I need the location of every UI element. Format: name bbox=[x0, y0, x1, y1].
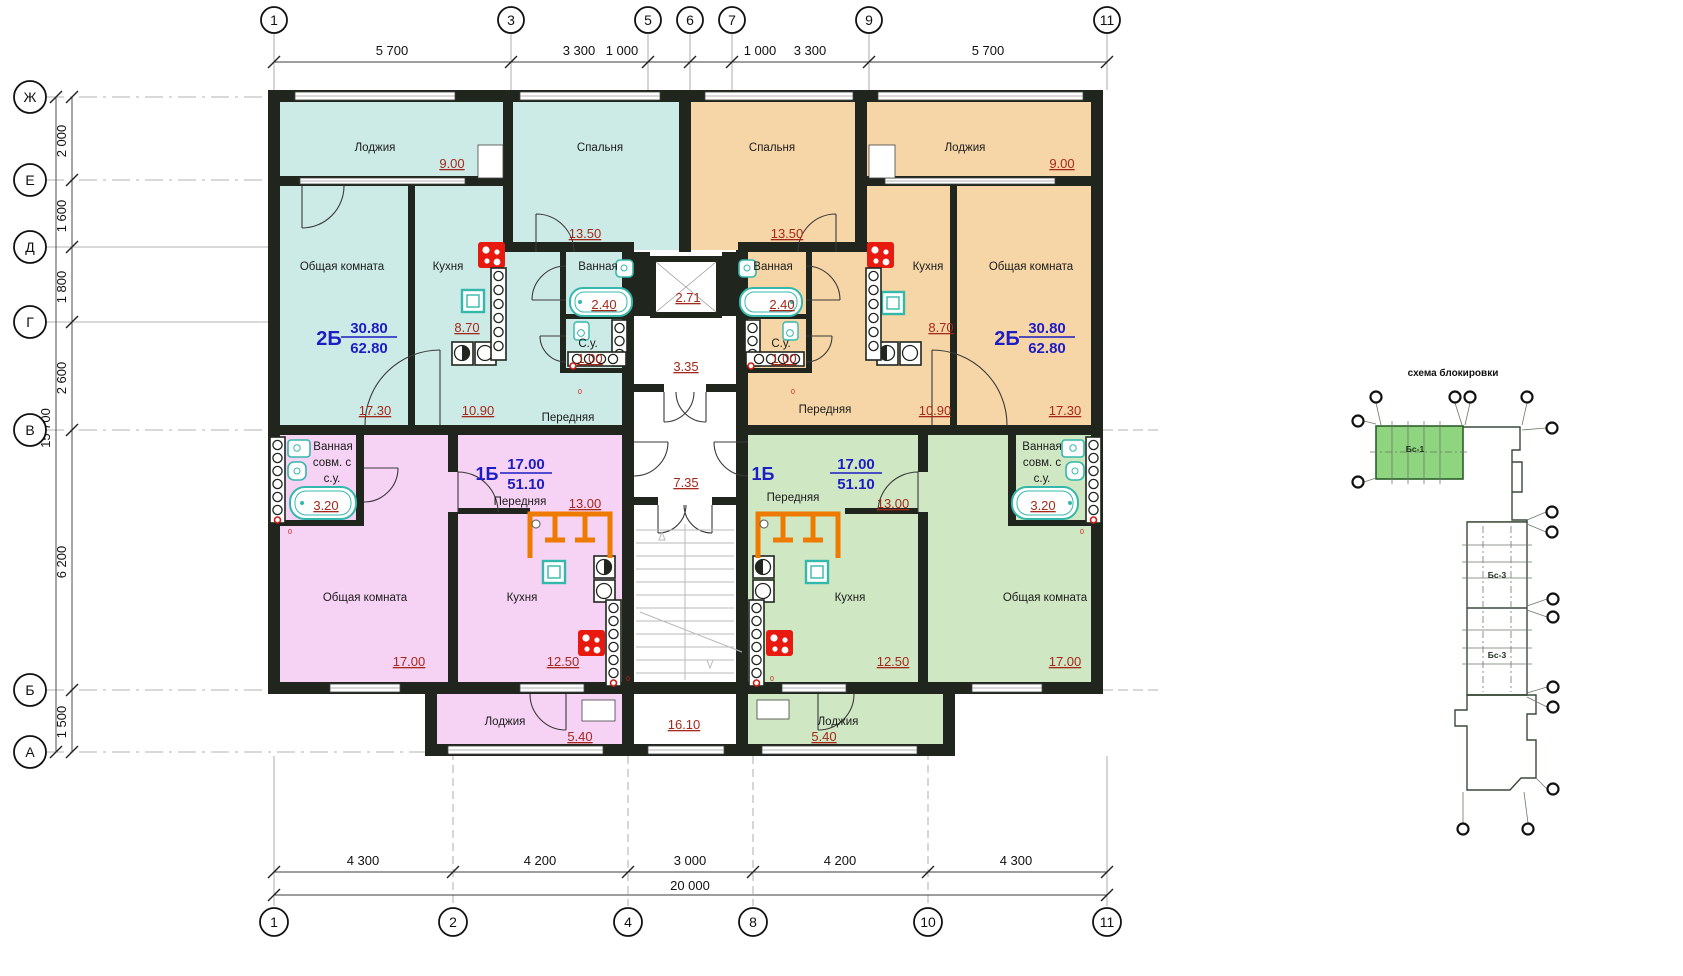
stove-icon bbox=[766, 630, 793, 656]
washbasin-icon bbox=[616, 260, 633, 277]
flat-total-area: 51.10 bbox=[507, 476, 545, 493]
room-area-kitchen: 8.70 bbox=[928, 320, 953, 335]
sink-icon bbox=[806, 561, 828, 583]
room-area-wc: 1.00 bbox=[577, 351, 602, 366]
room-area-hall: 10.90 bbox=[919, 403, 952, 418]
room-area-kitchen: 12.50 bbox=[547, 654, 580, 669]
axis-label: 6 bbox=[686, 12, 694, 28]
room-label-kitchen: Кухня bbox=[433, 261, 464, 273]
room-area-living: 17.00 bbox=[1049, 654, 1082, 669]
dim-bottom-3: 4 200 bbox=[824, 853, 857, 868]
room-area-living: 17.30 bbox=[1049, 403, 1082, 418]
radiator-icon bbox=[749, 600, 764, 686]
room-label-bedroom: Спальня bbox=[577, 142, 623, 154]
axis-label: Е bbox=[25, 172, 34, 188]
room-label-loggia: Лоджия bbox=[818, 716, 859, 728]
zero-mark: 0 bbox=[1080, 529, 1084, 536]
room-label-living: Общая комната bbox=[323, 592, 408, 604]
flat-total-area: 62.80 bbox=[350, 340, 388, 357]
dim-top-5: 5 700 bbox=[972, 43, 1005, 58]
sink-icon bbox=[882, 292, 904, 314]
room-area-wc: 1.00 bbox=[771, 351, 796, 366]
room-label-hall: Передняя bbox=[767, 492, 820, 504]
flat-living-area: 17.00 bbox=[507, 456, 545, 473]
axis-label: Ж bbox=[24, 89, 37, 105]
radiator-icon bbox=[491, 268, 506, 360]
axis-circles-left: Ж Е Д Г В Б А bbox=[14, 81, 46, 768]
room-area-bath: 3.20 bbox=[313, 498, 338, 513]
dim-bottom-2: 3 000 bbox=[674, 853, 707, 868]
dim-top-2: 1 000 bbox=[606, 43, 639, 58]
room-label-hall: Передняя bbox=[494, 496, 547, 508]
zero-mark: 0 bbox=[791, 389, 795, 396]
scheme-block-3a-label: Бс-3 bbox=[1488, 570, 1507, 580]
flat-total-area: 62.80 bbox=[1028, 340, 1066, 357]
room-label-kitchen: Кухня bbox=[913, 261, 944, 273]
axis-label: А bbox=[25, 744, 35, 760]
room-area-kitchen: 12.50 bbox=[877, 654, 910, 669]
axis-label: 11 bbox=[1100, 12, 1115, 28]
axis-label: 2 bbox=[449, 914, 457, 930]
elevator-area: 2.71 bbox=[675, 290, 700, 305]
washbasin-icon bbox=[1066, 462, 1084, 480]
washbasin-icon bbox=[288, 462, 306, 480]
staircase bbox=[636, 524, 742, 680]
stove-icon bbox=[578, 630, 605, 656]
room-area-bath: 3.20 bbox=[1030, 498, 1055, 513]
room-label-hall: Передняя bbox=[542, 412, 595, 424]
room-label-living: Общая комната bbox=[1003, 592, 1088, 604]
toilet-icon bbox=[288, 440, 310, 457]
window-band-top-2 bbox=[520, 92, 660, 100]
dim-top-3: 1 000 bbox=[744, 43, 777, 58]
radiator-icon bbox=[1086, 437, 1101, 523]
axis-label: Г bbox=[26, 314, 34, 330]
room-label-hall: Передняя bbox=[799, 404, 852, 416]
zero-mark: 0 bbox=[578, 389, 582, 396]
room-area-loggia: 5.40 bbox=[567, 729, 592, 744]
window-loggia-bottom-1 bbox=[448, 746, 603, 754]
blocking-scheme: схема блокировки Бс-1 Бс-3 Бс-3 bbox=[1353, 367, 1559, 835]
window-band-top-4 bbox=[878, 92, 1083, 100]
room-label-loggia: Лоджия bbox=[485, 716, 526, 728]
dim-total-width: 20 000 bbox=[670, 878, 710, 893]
room-label-kitchen: Кухня bbox=[507, 592, 538, 604]
flat-living-area: 30.80 bbox=[350, 320, 388, 337]
room-area-loggia: 9.00 bbox=[439, 156, 464, 171]
room-label-bath-1: Ванная bbox=[313, 441, 352, 453]
room-label-bath: Ванная bbox=[753, 261, 792, 273]
scheme-block-3b-label: Бс-3 bbox=[1488, 650, 1507, 660]
dim-left-3: 2 600 bbox=[54, 362, 69, 395]
axis-label: 1 bbox=[270, 914, 278, 930]
hall-area: 7.35 bbox=[673, 475, 698, 490]
axis-label: Д bbox=[25, 239, 35, 255]
axis-label: 4 bbox=[624, 914, 632, 930]
radiator-icon bbox=[866, 268, 881, 360]
room-label-loggia: Лоджия bbox=[945, 142, 986, 154]
zero-mark: 0 bbox=[626, 676, 630, 683]
room-label-wc: С.у. bbox=[771, 338, 790, 350]
flat-type: 1Б bbox=[752, 464, 775, 484]
flat-living-area: 17.00 bbox=[837, 456, 875, 473]
axis-label: 8 bbox=[749, 914, 757, 930]
room-area-loggia: 5.40 bbox=[811, 729, 836, 744]
axis-circles-top: 1 3 5 6 7 9 11 bbox=[261, 7, 1120, 33]
stove-icon bbox=[867, 242, 894, 268]
flat-type: 2Б bbox=[316, 328, 342, 350]
window-loggia-bottom-2 bbox=[762, 746, 917, 754]
dim-left-0: 2 000 bbox=[54, 125, 69, 158]
axis-label: 5 bbox=[644, 12, 652, 28]
room-label-bedroom: Спальня bbox=[749, 142, 795, 154]
room-area-kitchen: 8.70 bbox=[454, 320, 479, 335]
dim-bottom-0: 4 300 bbox=[347, 853, 380, 868]
room-area-living: 17.00 bbox=[393, 654, 426, 669]
room-area-hall: 13.00 bbox=[877, 496, 910, 511]
stair-area: 16.10 bbox=[668, 717, 701, 732]
floor-plan-page: Лоджия 9.00 Спальня 13.50 Общая комната … bbox=[0, 0, 1683, 976]
radiator-icon bbox=[606, 600, 621, 686]
room-label-bath-3: с.у. bbox=[324, 473, 341, 485]
flat-type: 2Б bbox=[994, 328, 1020, 350]
axis-label: Б bbox=[25, 682, 34, 698]
loggia-pier-bottom-right bbox=[757, 700, 789, 719]
window-bottom-1 bbox=[330, 684, 400, 692]
room-area-loggia: 9.00 bbox=[1049, 156, 1074, 171]
window-stair bbox=[648, 746, 724, 754]
dim-top-1: 3 300 bbox=[563, 43, 596, 58]
zero-mark: 0 bbox=[770, 676, 774, 683]
dimension-bottom: 4 300 4 200 3 000 4 200 4 300 20 000 1 2… bbox=[260, 853, 1121, 936]
window-bottom-2 bbox=[520, 684, 584, 692]
axis-label: 1 bbox=[270, 12, 278, 28]
axis-label: 11 bbox=[1100, 914, 1115, 930]
axis-label: 9 bbox=[865, 12, 873, 28]
dim-left-1: 1 600 bbox=[54, 200, 69, 233]
flat-total-area: 51.10 bbox=[837, 476, 875, 493]
room-area-bath: 2.40 bbox=[591, 297, 616, 312]
stove-icon bbox=[478, 242, 505, 268]
lobby-area: 3.35 bbox=[673, 359, 698, 374]
window-bottom-4 bbox=[972, 684, 1042, 692]
room-label-bath: Ванная bbox=[578, 261, 617, 273]
room-label-living: Общая комната bbox=[300, 261, 385, 273]
toilet-icon bbox=[1062, 440, 1084, 457]
axis-circles-bottom: 1 2 4 8 10 11 bbox=[260, 908, 1121, 936]
window-band-top-1 bbox=[295, 92, 455, 100]
scheme-block-1-label: Бс-1 bbox=[1406, 444, 1425, 454]
room-label-bath-2: совм. с bbox=[1023, 457, 1062, 469]
room-label-bath-2: совм. с bbox=[313, 457, 352, 469]
window-loggia-right bbox=[885, 178, 1055, 184]
flat-type: 1Б bbox=[476, 464, 499, 484]
room-label-kitchen: Кухня bbox=[835, 592, 866, 604]
axis-label: 3 bbox=[507, 12, 515, 28]
room-label-bath-1: Ванная bbox=[1022, 441, 1061, 453]
dim-top-4: 3 300 bbox=[794, 43, 827, 58]
sink-icon bbox=[462, 290, 484, 312]
radiator-icon bbox=[270, 437, 285, 523]
room-area-living: 17.30 bbox=[359, 403, 392, 418]
scheme-title: схема блокировки bbox=[1408, 367, 1499, 379]
axis-label: В bbox=[25, 422, 34, 438]
window-loggia-left bbox=[300, 178, 465, 184]
dim-top-0: 5 700 bbox=[376, 43, 409, 58]
dim-bottom-4: 4 300 bbox=[1000, 853, 1033, 868]
room-area-bedroom: 13.50 bbox=[771, 226, 804, 241]
dim-left-2: 1 800 bbox=[54, 271, 69, 304]
room-label-bath-3: с.у. bbox=[1034, 473, 1051, 485]
loggia-pier-left bbox=[478, 145, 503, 178]
room-area-bedroom: 13.50 bbox=[569, 226, 602, 241]
room-area-hall: 13.00 bbox=[569, 496, 602, 511]
room-area-bath: 2.40 bbox=[769, 297, 794, 312]
zero-mark: 0 bbox=[288, 529, 292, 536]
dimension-left: 2 000 1 600 1 800 2 600 6 200 1 500 15 7… bbox=[14, 81, 78, 768]
dimension-top: 5 700 3 300 1 000 1 000 3 300 5 700 1 3 … bbox=[261, 7, 1120, 68]
floor-plan-drawing: Лоджия 9.00 Спальня 13.50 Общая комната … bbox=[0, 0, 1683, 976]
loggia-pier-right bbox=[869, 145, 895, 178]
window-band-top-3 bbox=[705, 92, 853, 100]
dim-left-4: 6 200 bbox=[54, 546, 69, 579]
room-area-hall: 10.90 bbox=[462, 403, 495, 418]
axis-label: 10 bbox=[920, 914, 936, 930]
window-bottom-3 bbox=[782, 684, 846, 692]
sink-icon bbox=[543, 561, 565, 583]
flat-living-area: 30.80 bbox=[1028, 320, 1066, 337]
dim-left-5: 1 500 bbox=[54, 706, 69, 739]
room-label-loggia: Лоджия bbox=[355, 142, 396, 154]
dim-bottom-1: 4 200 bbox=[524, 853, 557, 868]
axis-label: 7 bbox=[728, 12, 736, 28]
loggia-pier-bottom-left bbox=[582, 700, 615, 721]
room-label-living: Общая комната bbox=[989, 261, 1074, 273]
